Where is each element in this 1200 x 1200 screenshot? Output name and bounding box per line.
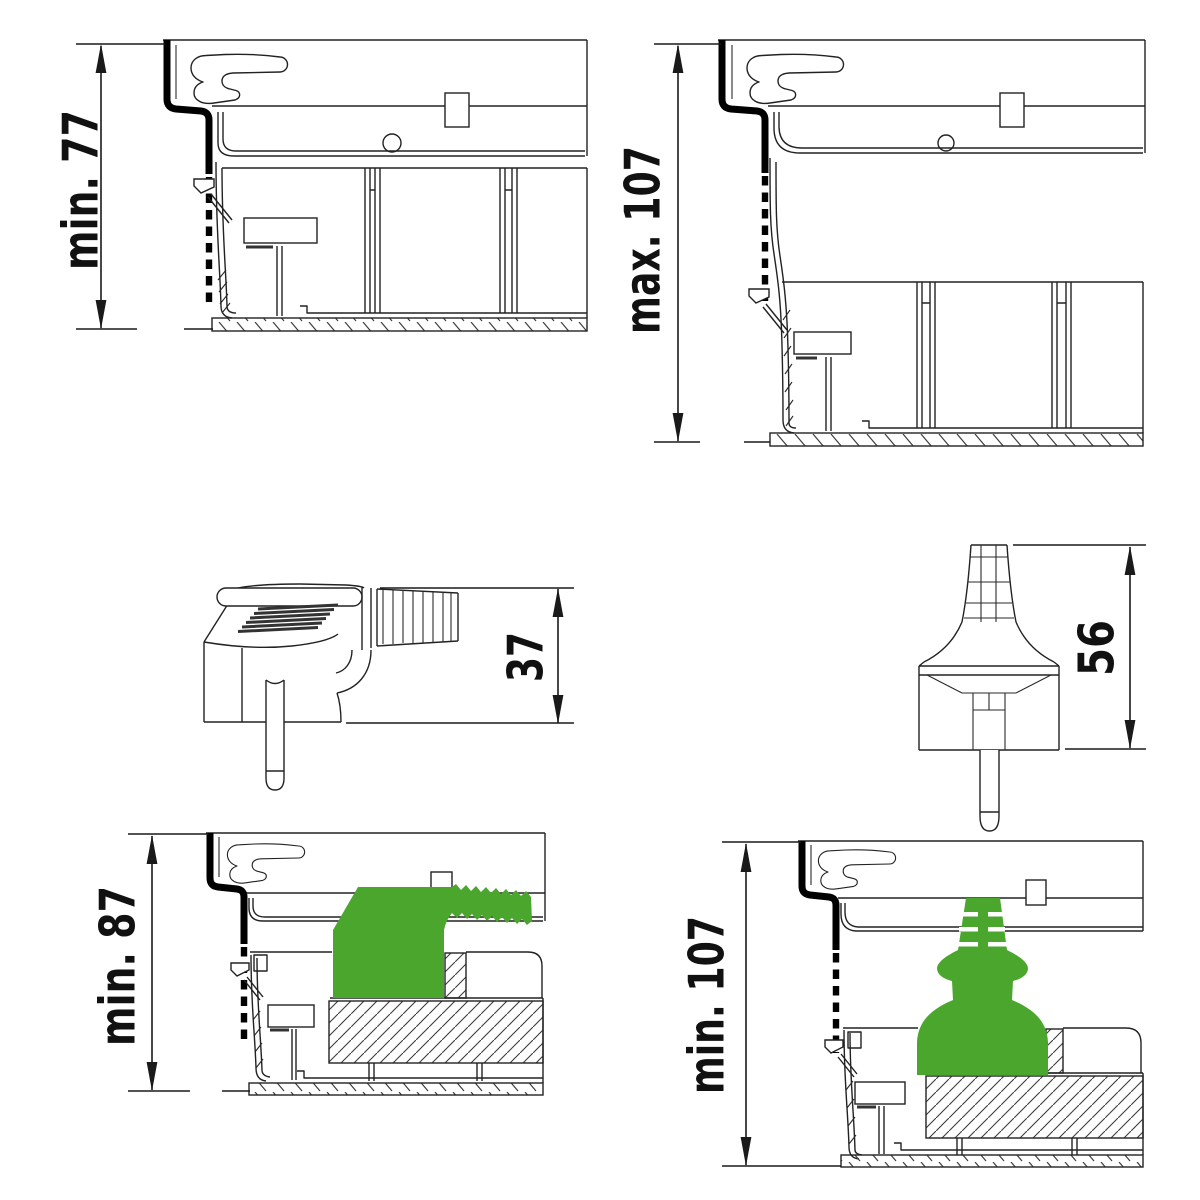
arrow-down-icon	[147, 1062, 158, 1091]
diagram-clearance-straight-plug: min. 107	[679, 841, 1144, 1167]
cable-boot-ribs	[383, 590, 451, 644]
spring-clip	[825, 1040, 843, 1053]
diagram-clearance-angled-plug: min. 87	[90, 833, 546, 1095]
hatched-base-strip	[249, 1083, 543, 1095]
fixing-clip	[1026, 880, 1046, 905]
dimension-label-min-107: min. 107	[679, 916, 736, 1094]
wall-top-detail	[254, 955, 267, 971]
mounting-bracket	[268, 1005, 314, 1027]
internal-support-1	[365, 168, 380, 313]
slit	[988, 942, 1007, 947]
installation-diagram-page: min. 77	[0, 0, 1200, 1200]
spring-clip	[231, 963, 249, 976]
diagram-angled-plug: 37	[204, 584, 574, 790]
inner-floor-line	[300, 306, 587, 313]
mounting-hook-slot	[191, 54, 288, 103]
cable-boot-segments	[964, 545, 1014, 622]
hob-body-section	[749, 158, 1143, 446]
mounting-hook-slot	[227, 844, 304, 883]
hatched-socket-block	[926, 1076, 1143, 1138]
arrow-down-icon	[741, 1137, 752, 1166]
slit	[957, 942, 978, 947]
diagram-straight-plug: 56	[919, 545, 1146, 833]
hob-side-wall	[770, 158, 796, 433]
hatched-socket-block	[329, 1001, 543, 1063]
arrow-up-icon	[741, 843, 752, 872]
dimension-lines	[722, 842, 841, 1166]
dimension-min-107: min. 107	[679, 842, 842, 1166]
arrow-down-icon	[553, 695, 564, 724]
pin-mask	[266, 680, 284, 788]
fixing-clip	[1000, 93, 1024, 127]
angled-plug-silhouette	[333, 884, 532, 998]
hatched-socket-side	[1046, 1029, 1063, 1073]
arrow-up-icon	[673, 44, 684, 73]
inner-floor-line	[894, 1143, 1143, 1150]
dimension-label-56: 56	[1069, 620, 1126, 676]
hatched-base-strip	[841, 1155, 1143, 1167]
mounting-hook-slot	[747, 54, 844, 103]
internal-support-2	[1052, 282, 1071, 428]
inner-floor-line	[862, 421, 1143, 428]
slit	[988, 927, 1005, 932]
dimension-min-77: min. 77	[53, 44, 214, 329]
fixing-clip	[445, 93, 469, 127]
hob-body-outline	[782, 282, 1143, 433]
internal-supports	[957, 1138, 1077, 1155]
worktop-edge-profile	[210, 833, 244, 944]
plug-body-detail	[927, 675, 1051, 750]
slit	[988, 912, 1004, 917]
dimension-label-max-107: max. 107	[615, 146, 672, 334]
arrow-up-icon	[553, 588, 564, 617]
hatched-base-strip	[212, 318, 587, 331]
mounting-bracket	[244, 218, 317, 243]
cable-boot-outline	[377, 589, 458, 646]
hob-flange	[774, 112, 1143, 153]
cable-collar	[362, 587, 377, 650]
worktop-outline	[718, 40, 1145, 153]
slit	[959, 927, 978, 932]
dimension-min-87: min. 87	[90, 834, 251, 1091]
arrow-up-icon	[1125, 546, 1136, 575]
diagram-worktop-thin-section: min. 77	[53, 40, 588, 331]
dimension-label-min-87: min. 87	[90, 886, 147, 1046]
mounting-hook-slot	[818, 850, 895, 889]
mounting-bracket	[855, 1082, 905, 1104]
screw-hole	[383, 134, 401, 152]
arrow-down-icon	[673, 413, 684, 442]
bracket-leg	[277, 246, 282, 316]
clip-strut	[838, 1054, 857, 1077]
dimension-label-min-77: min. 77	[53, 110, 110, 270]
dimension-max-107: max. 107	[615, 44, 771, 442]
arrow-up-icon	[96, 44, 107, 73]
pin-mask	[980, 750, 999, 833]
hob-body-section	[194, 162, 587, 331]
grip-ridges	[238, 605, 338, 632]
bracket-leg	[879, 1106, 884, 1154]
grip-recess	[217, 588, 362, 606]
arrow-down-icon	[96, 300, 107, 329]
mounting-bracket	[794, 332, 851, 354]
straight-plug-silhouette	[917, 898, 1048, 1075]
worktop-edge-profile	[167, 40, 209, 174]
internal-support-1	[917, 282, 935, 428]
hob-flange	[218, 112, 585, 156]
worktop-edge-profile	[722, 40, 765, 173]
plug-top-face-edge	[204, 634, 338, 647]
technical-diagram-canvas: min. 77	[0, 0, 1200, 1200]
bracket-leg	[292, 1029, 296, 1080]
hatched-base-strip	[770, 433, 1143, 446]
hatched-socket-side	[445, 953, 466, 998]
arrow-down-icon	[1125, 720, 1136, 749]
internal-support-2	[500, 168, 517, 313]
slit	[961, 912, 978, 917]
diagram-worktop-thick-section: max. 107	[615, 40, 1146, 446]
hob-side-wall	[216, 162, 236, 318]
inner-floor-line	[297, 1071, 543, 1078]
dimension-label-37: 37	[498, 632, 555, 682]
arrow-up-icon	[147, 835, 158, 864]
elbow-bend	[336, 650, 371, 722]
bracket-leg	[826, 357, 831, 431]
spring-clip	[194, 179, 214, 193]
dimension-37: 37	[346, 588, 574, 724]
cone-flare	[924, 622, 1054, 662]
